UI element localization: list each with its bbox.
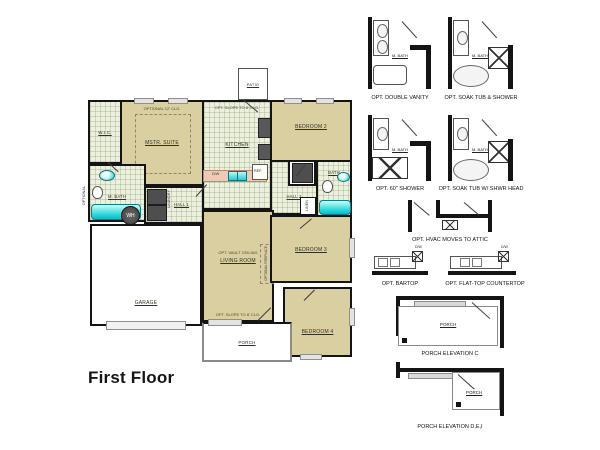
- porch-label: PORCH: [204, 340, 290, 345]
- optional-fireplace-label: OPTIONAL FIREPLACE: [264, 246, 268, 281]
- garage-door: [106, 321, 186, 330]
- wic-label: W.I.C.: [90, 130, 120, 135]
- bedroom-2-label: BEDROOM 2: [272, 124, 350, 130]
- opt-soak-tub-shwr-head-caption: OPT. SOAK TUB W/ SHWR HEAD: [428, 186, 534, 192]
- linen-label: LINEN: [305, 200, 309, 211]
- porch-label: PORCH: [440, 322, 456, 327]
- sink-basin-1: [378, 258, 388, 267]
- opt-bartop-caption: OPT. BARTOP: [372, 281, 428, 287]
- bedroom-4-window-2: [300, 354, 322, 360]
- opt-double-vanity-caption: OPT. DOUBLE VANITY: [360, 95, 440, 101]
- refrigerator-label: REF: [254, 169, 262, 173]
- m-bath-label: M. BATH: [472, 147, 488, 152]
- linen-closet: LINEN: [300, 197, 316, 215]
- porch-elevation-c-caption: PORCH ELEVATION C: [408, 351, 492, 357]
- master-bath-sink: [99, 170, 115, 181]
- m-bath-label: M. BATH: [392, 147, 408, 152]
- porch-elevation-dei-caption: PORCH ELEVATION D,E,I: [406, 424, 494, 430]
- dryer: [147, 205, 167, 221]
- sink-basin-2: [390, 258, 400, 267]
- bedroom-2: BEDROOM 2: [270, 100, 352, 162]
- vanity-sink: [457, 31, 468, 45]
- shower-symbol: [488, 47, 510, 69]
- water-heater: WH: [121, 206, 140, 225]
- garage-label: GARAGE: [92, 300, 200, 306]
- dishwasher-symbol: [498, 251, 509, 262]
- shower-head-symbol: [488, 141, 510, 163]
- kitchen-option-label: OPT. SLOPE TO 8' CLG.: [204, 105, 270, 110]
- bedroom-4: BEDROOM 4: [283, 287, 352, 357]
- opt-hvac-caption: OPT. HVAC MOVES TO ATTIC: [400, 237, 500, 243]
- dishwasher-symbol: [412, 251, 423, 262]
- window-band: [408, 373, 456, 379]
- bedroom-4-window: [349, 308, 355, 326]
- bedroom-4-label: BEDROOM 4: [285, 329, 350, 335]
- washer: [147, 189, 167, 205]
- porch-window: [208, 319, 242, 326]
- vanity-sink-1: [377, 24, 388, 38]
- patio-label: PATIO: [239, 82, 267, 87]
- opt-60-shower-caption: OPT. 60" SHOWER: [362, 186, 438, 192]
- bedroom-3: BEDROOM 3: [270, 215, 352, 283]
- floor-plan-sheet: PATIO W.I.C. OPTIONAL 12' CLG. MSTR. SUI…: [0, 0, 600, 450]
- front-porch: PORCH: [202, 322, 292, 362]
- bedroom-2-window-2: [316, 98, 334, 104]
- porch-elevation-dei-figure: PORCH: [396, 362, 504, 420]
- dishwasher-label: D/W: [415, 245, 422, 249]
- opt-bartop-figure: D/W: [372, 250, 428, 278]
- vanity-sink: [377, 127, 388, 141]
- master-suite-option-label: OPTIONAL 12' CLG.: [122, 106, 202, 111]
- bedroom-3-label: BEDROOM 3: [272, 247, 350, 253]
- laundry-label: LAUNDRY: [167, 190, 171, 208]
- m-bath-label: M. BATH: [392, 53, 408, 58]
- kitchen-sink-right: [237, 171, 247, 181]
- opt-60-shower-figure: M. BATH: [368, 113, 432, 185]
- hvac-platform-symbol: [442, 220, 458, 230]
- dishwasher-label: D/W: [212, 172, 219, 176]
- opt-hvac-figure: [408, 198, 492, 234]
- garage: GARAGE: [90, 224, 202, 326]
- porch-label: PORCH: [466, 390, 482, 395]
- master-bath-toilet: [92, 186, 103, 199]
- master-window-2: [168, 98, 188, 104]
- opt-soak-tub-shower-caption: OPT. SOAK TUB & SHOWER: [432, 95, 530, 101]
- m-bath-label: M. BATH: [472, 53, 488, 58]
- master-bath-label: M. BATH: [108, 194, 126, 199]
- sink-basin-1: [460, 258, 470, 267]
- sink-basin-2: [472, 258, 482, 267]
- walk-in-closet: W.I.C.: [88, 100, 122, 164]
- bedroom-3-window: [349, 238, 355, 258]
- vanity-sink: [457, 127, 468, 141]
- refrigerator: REF: [252, 164, 268, 180]
- opt-flat-top-caption: OPT. FLAT-TOP COUNTERTOP: [440, 281, 530, 287]
- bath-sink: [337, 172, 350, 182]
- master-window-1: [134, 98, 154, 104]
- hall-1-label: HALL 1: [174, 202, 189, 207]
- opt-soak-tub-shower-figure: M. BATH: [448, 15, 514, 93]
- tub-outline: [373, 65, 407, 85]
- bath-tub: [319, 200, 351, 215]
- patio: PATIO: [238, 68, 268, 100]
- dishwasher-label: D/W: [501, 245, 508, 249]
- opt-flat-top-figure: D/W: [448, 250, 516, 278]
- opt-double-vanity-figure: M. BATH: [368, 15, 432, 93]
- bedroom-2-window-1: [284, 98, 302, 104]
- bath-toilet: [322, 180, 333, 193]
- soak-tub: [453, 159, 489, 181]
- optional-door-label: OPTIONAL: [82, 186, 86, 205]
- master-suite-label: MSTR. SUITE: [122, 140, 202, 146]
- water-heater-label: WH: [126, 213, 134, 219]
- shower-symbol: [372, 157, 408, 179]
- opt-soak-tub-shwr-head-figure: M. BATH: [448, 113, 514, 185]
- page-title: First Floor: [88, 368, 174, 388]
- vanity-sink-2: [377, 40, 388, 54]
- porch-elevation-c-figure: PORCH: [396, 296, 504, 348]
- soak-tub: [453, 65, 489, 87]
